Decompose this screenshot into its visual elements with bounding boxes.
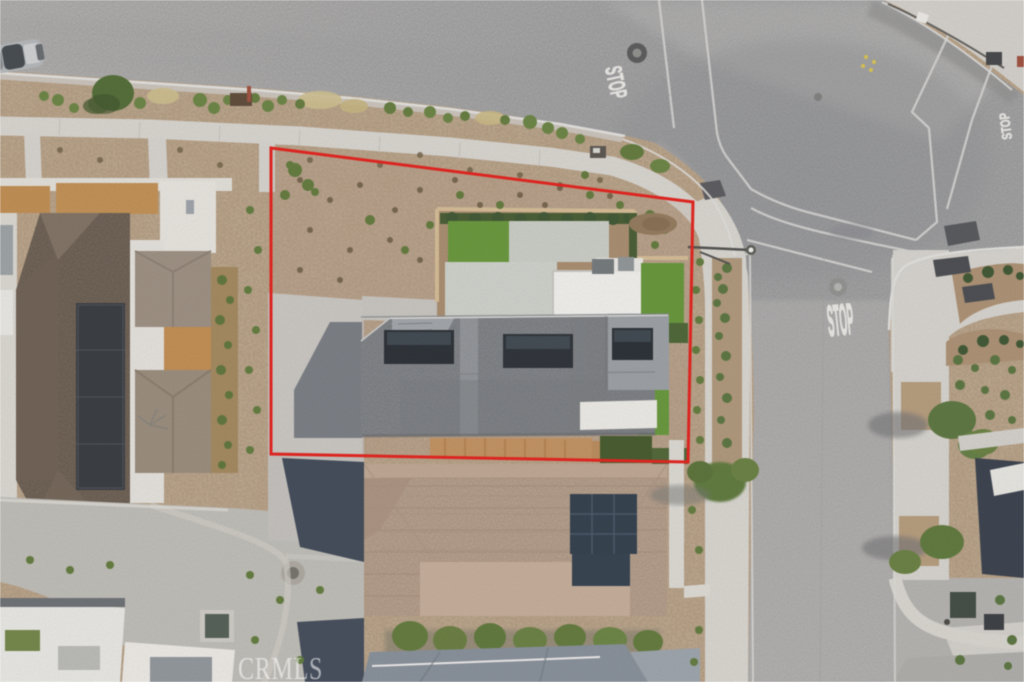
svg-text:CRMLS: CRMLS — [238, 652, 323, 682]
